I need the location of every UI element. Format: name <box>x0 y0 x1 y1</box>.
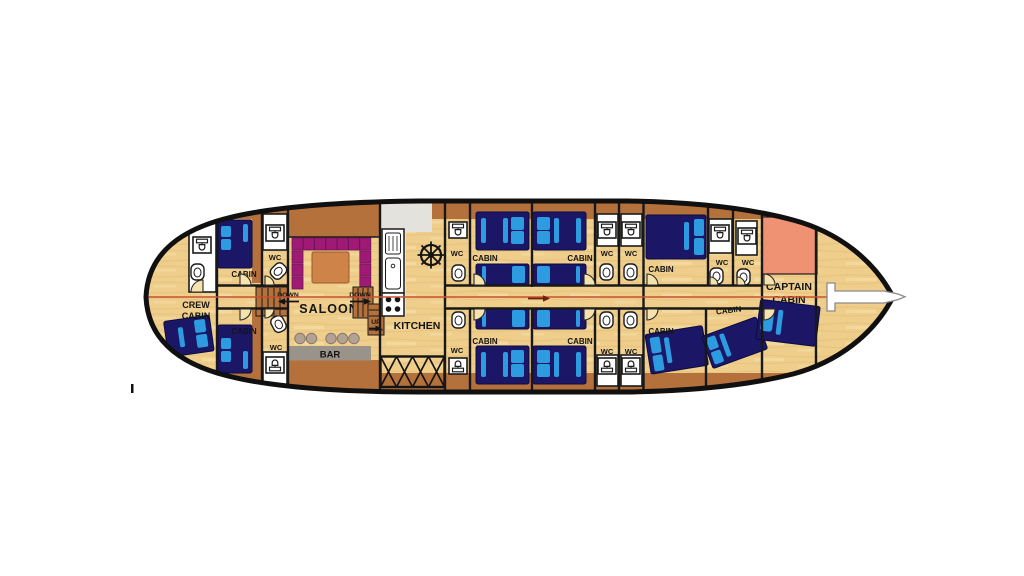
wc-label: WC <box>269 253 282 262</box>
bar-stool <box>295 333 305 343</box>
cabin-label: CABIN <box>567 337 593 346</box>
sink-icon <box>191 264 204 280</box>
mid-cabin-top-left: CABIN <box>472 212 529 285</box>
sink-icon <box>452 265 465 281</box>
sink-icon <box>600 264 613 280</box>
deck-plan-canvas: CREW CABIN CABIN WC CABIN WC <box>0 0 1024 576</box>
toilet-icon <box>622 358 640 374</box>
bar-stool <box>349 333 359 343</box>
aft-bottom-cabinet <box>252 310 262 374</box>
wc-label: WC <box>625 249 638 258</box>
wc-label: WC <box>742 258 755 267</box>
bar: BAR <box>289 333 371 360</box>
crew-cabin-label-line1: CREW <box>182 300 210 310</box>
helm-wheel-icon <box>418 242 445 269</box>
cabin-label: CABIN <box>231 327 257 336</box>
down-label: DOWN <box>349 292 371 299</box>
bar-stool <box>306 333 316 343</box>
cabin-label: CABIN <box>648 265 674 274</box>
cabin-label: CABIN <box>567 254 593 263</box>
toilet-icon <box>738 228 756 244</box>
toilet-icon <box>266 225 284 241</box>
toilet-icon <box>598 222 616 238</box>
sink-icon <box>452 312 465 328</box>
toilet-icon <box>266 357 284 373</box>
mid-cabin-bottom-left: CABIN <box>472 308 529 384</box>
sink-icon <box>624 312 637 328</box>
cabin-label: CABIN <box>648 327 674 336</box>
captain-bed <box>756 299 820 346</box>
bar-label: BAR <box>320 350 341 361</box>
sink-icon <box>624 264 637 280</box>
toilet-icon <box>711 225 729 241</box>
sink-icon <box>600 312 613 328</box>
wc-label: WC <box>270 343 283 352</box>
toilet-icon <box>449 222 467 238</box>
toilet-icon <box>449 358 467 374</box>
toilet-icon <box>622 222 640 238</box>
aft-cabin-bottom: CABIN <box>218 325 257 373</box>
crew-cabin-label-line2: CABIN <box>182 311 211 321</box>
cabin-label: CABIN <box>472 254 498 263</box>
wc-label: WC <box>451 249 464 258</box>
bar-stool <box>326 333 336 343</box>
bar-stool <box>337 333 347 343</box>
kitchen-label: KITCHEN <box>394 320 441 332</box>
kitchen-sink <box>382 229 404 293</box>
fwd-cabin-bottom: CABIN <box>645 326 709 375</box>
cabin-label: CABIN <box>472 337 498 346</box>
toilet-icon <box>598 358 616 374</box>
saloon-table <box>312 252 349 283</box>
toilet-icon <box>193 237 211 253</box>
stray-mark <box>131 384 134 393</box>
wc-label: WC <box>716 258 729 267</box>
saloon-label: SALOON <box>299 302 358 316</box>
wc-label: WC <box>451 346 464 355</box>
wc-label: WC <box>601 249 614 258</box>
